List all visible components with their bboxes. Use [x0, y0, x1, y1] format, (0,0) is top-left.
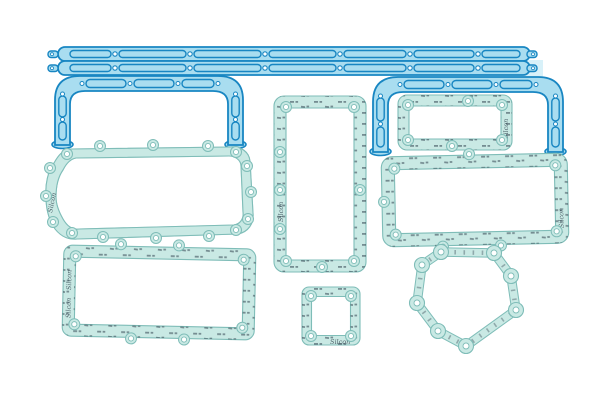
watermark-text: Silcon [64, 298, 72, 319]
gasket-set-illustration: Silcon Silcon Silcon Silcon Silcon Silco… [0, 0, 600, 400]
small-top-cover-gasket: Silcon [398, 95, 512, 152]
gasket-set-photo: Silcon Silcon Silcon Silcon Silcon Silco… [0, 0, 600, 400]
large-cover-gasket: Silcon [377, 147, 569, 254]
watermark-text: Silcon [277, 202, 285, 222]
tall-side-cover-gasket: Silcon [274, 96, 366, 273]
watermark-text: Silcon [557, 208, 565, 229]
oil-pan-gasket: Silcon [41, 140, 257, 244]
bottom-left-cover-gasket: Silcon Silcon [62, 238, 256, 347]
small-square-gasket: Silcon [302, 287, 360, 346]
watermark-text: Silcon [65, 270, 73, 291]
polygon-cover-gasket [410, 245, 524, 354]
rail-seal-upper [48, 47, 537, 61]
rail-seal-lower [48, 61, 537, 75]
arch-seal-left [52, 76, 246, 149]
